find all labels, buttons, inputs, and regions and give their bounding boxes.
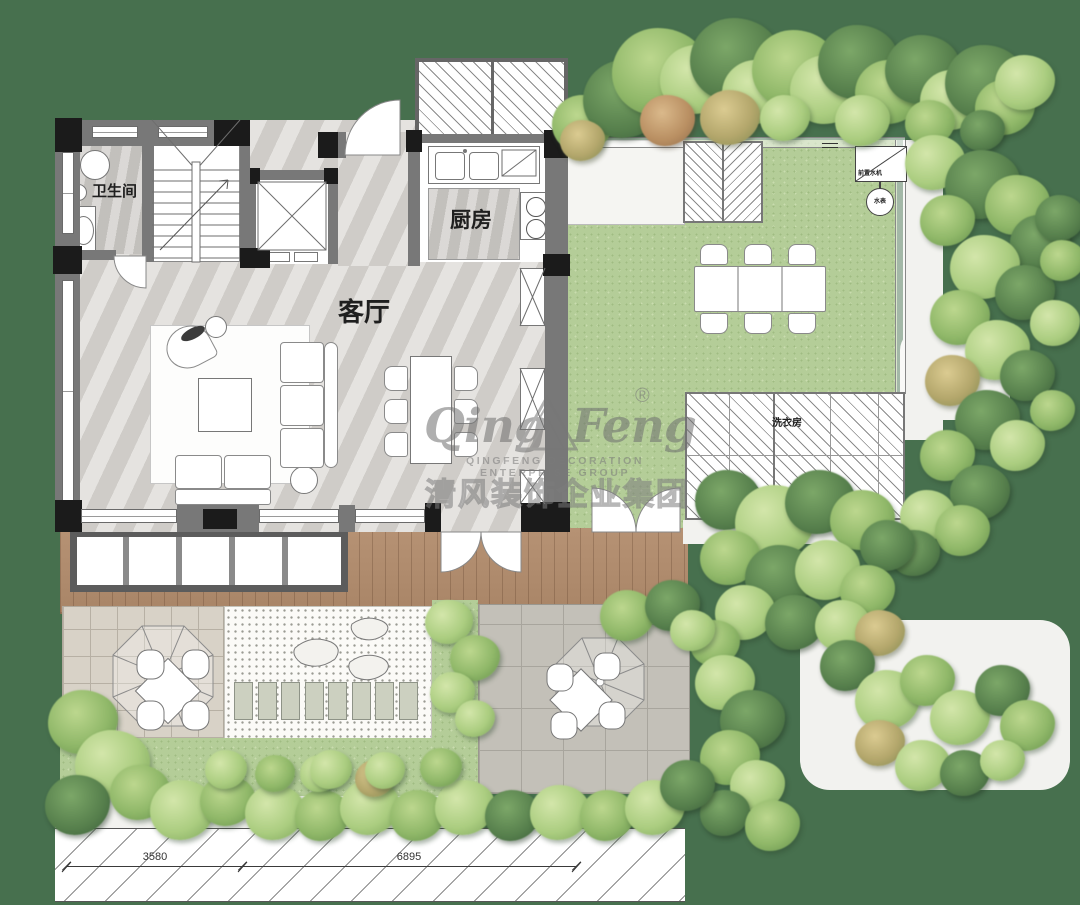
watermark-script-right: Feng: [572, 399, 696, 454]
watermark-subtitle-cn: 清风装饰企业集团: [424, 469, 690, 514]
bathroom-label: 卫生间: [92, 180, 137, 201]
watermark-triangle-logo: [516, 395, 578, 451]
kitchen-label: 厨房: [450, 204, 492, 234]
floor-plan-canvas: 前置水机 水表: [0, 0, 1080, 905]
watermark: ® Qing Feng QINGFENG DECORATION ENTERPRI…: [420, 385, 690, 510]
living-room-label: 客厅: [338, 292, 390, 329]
laundry-room-label: 洗衣房: [772, 414, 802, 429]
